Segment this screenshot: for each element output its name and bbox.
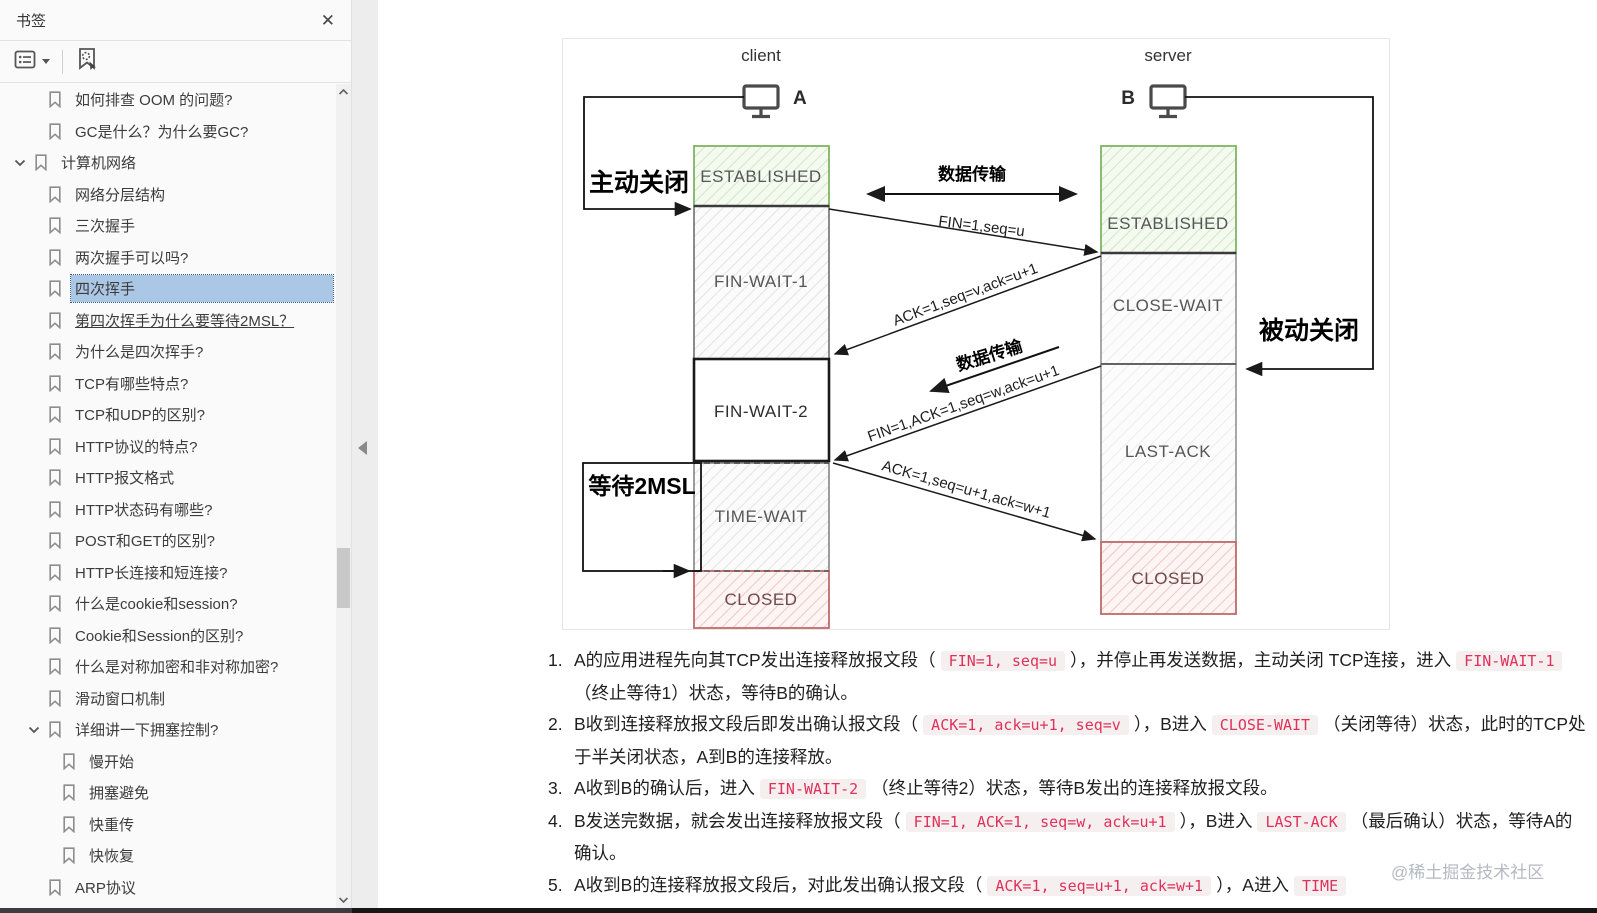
bookmark-icon bbox=[48, 532, 63, 549]
bookmark-item[interactable]: 详细讲一下拥塞控制? bbox=[0, 714, 335, 746]
server-computer-icon bbox=[1151, 86, 1185, 117]
bookmark-item-label: HTTP协议的特点? bbox=[71, 433, 333, 460]
note-body: A收到B的确认后，进入FIN-WAIT-2（终止等待2）状态，等待B发出的连接释… bbox=[574, 773, 1588, 806]
bookmark-item-label: 快恢复 bbox=[85, 842, 333, 869]
code-chip: FIN=1, ACK=1, seq=w, ack=u+1 bbox=[906, 812, 1175, 832]
note-item: 2.B收到连接释放报文段后即发出确认报文段（ACK=1, ack=u+1, se… bbox=[548, 709, 1588, 773]
bookmark-item-label: 拥塞避免 bbox=[85, 779, 333, 806]
server-title: server bbox=[1144, 46, 1192, 65]
msg-fin-label: FIN=1,seq=u bbox=[937, 213, 1025, 240]
bookmark-item[interactable]: ARP协议 bbox=[0, 872, 335, 904]
bookmark-icon bbox=[48, 469, 63, 486]
bookmark-item-label: HTTP状态码有哪些? bbox=[71, 496, 333, 523]
client-title: client bbox=[741, 46, 781, 65]
bookmark-icon bbox=[48, 91, 63, 108]
bookmarks-panel: 书签 ✕ 如何排查 OOM 的问题?GC是什么 bbox=[0, 0, 352, 908]
note-number: 3. bbox=[548, 773, 574, 806]
bookmark-icon bbox=[48, 375, 63, 392]
bookmark-item-label: 详细讲一下拥塞控制? bbox=[71, 716, 333, 743]
code-chip: TIME bbox=[1294, 876, 1346, 896]
code-chip: LAST-ACK bbox=[1257, 812, 1345, 832]
bookmark-item[interactable]: 两次握手可以吗? bbox=[0, 242, 335, 274]
bookmark-item[interactable]: 快恢复 bbox=[0, 840, 335, 872]
bookmark-icon bbox=[48, 879, 63, 896]
bookmark-item[interactable]: TCP有哪些特点? bbox=[0, 368, 335, 400]
bookmark-item[interactable]: 如何排查 OOM 的问题? bbox=[0, 84, 335, 116]
passive-close-label: 被动关闭 bbox=[1259, 317, 1359, 345]
bookmark-item-label: GC是什么？为什么要GC? bbox=[71, 118, 333, 145]
bookmark-icon bbox=[48, 627, 63, 644]
bookmark-icon bbox=[48, 343, 63, 360]
note-item: 3.A收到B的确认后，进入FIN-WAIT-2（终止等待2）状态，等待B发出的连… bbox=[548, 773, 1588, 806]
bookmark-icon bbox=[48, 312, 63, 329]
bookmark-item[interactable]: HTTP长连接和短连接? bbox=[0, 557, 335, 589]
note-number: 5. bbox=[548, 870, 574, 903]
bookmark-item[interactable]: TCP和UDP的区别? bbox=[0, 399, 335, 431]
msg-ack1-label: ACK=1,seq=v,ack=u+1 bbox=[891, 260, 1040, 330]
bookmark-item-label: HTTP长连接和短连接? bbox=[71, 559, 333, 586]
panel-gutter bbox=[352, 0, 378, 908]
bookmark-icon bbox=[62, 753, 77, 770]
bookmark-item[interactable]: HTTP协议的特点? bbox=[0, 431, 335, 463]
code-chip: ACK=1, ack=u+1, seq=v bbox=[923, 715, 1129, 735]
note-number: 1. bbox=[548, 645, 574, 709]
scrollbar-thumb[interactable] bbox=[337, 548, 350, 608]
note-item: 1.A的应用进程先向其TCP发出连接释放报文段（FIN=1, seq=u），并停… bbox=[548, 645, 1588, 709]
diagram-svg: client server A B ESTABLISHED FIN-WAIT-1… bbox=[563, 39, 1389, 629]
note-body: B收到连接释放报文段后即发出确认报文段（ACK=1, ack=u+1, seq=… bbox=[574, 709, 1588, 773]
bookmark-item-label: ARP协议 bbox=[71, 874, 333, 901]
bookmark-icon bbox=[48, 249, 63, 266]
toolbar-separator bbox=[62, 50, 63, 74]
note-text: A收到B的连接释放报文段后，对此发出确认报文段（ bbox=[574, 875, 982, 895]
bookmark-icon bbox=[48, 280, 63, 297]
bookmark-item-label: HTTP报文格式 bbox=[71, 464, 333, 491]
bookmark-item-label: POST和GET的区别? bbox=[71, 527, 333, 554]
bookmark-item-label: 四次挥手 bbox=[71, 275, 333, 302]
bookmark-icon bbox=[48, 406, 63, 423]
bookmark-item-label: 为什么是四次挥手? bbox=[71, 338, 333, 365]
caret-down-icon bbox=[42, 59, 50, 64]
bookmark-icon bbox=[48, 690, 63, 707]
server-state-established bbox=[1101, 146, 1236, 253]
note-text: （终止等待2）状态，等待B发出的连接释放报文段。 bbox=[871, 778, 1277, 798]
sidebar-scrollbar[interactable] bbox=[336, 84, 351, 908]
bookmark-item[interactable]: 第四次挥手为什么要等待2MSL？ bbox=[0, 305, 335, 337]
note-text: ），并停止再发送数据，主动关闭 TCP连接，进入 bbox=[1070, 650, 1451, 670]
note-text: ），B进入 bbox=[1180, 811, 1253, 831]
bookmark-item-label: Cookie和Session的区别? bbox=[71, 622, 333, 649]
bookmark-icon bbox=[48, 123, 63, 140]
bookmark-item[interactable]: 什么是对称加密和非对称加密? bbox=[0, 651, 335, 683]
bookmark-item-label: 网络分层结构 bbox=[71, 181, 333, 208]
client-host-letter: A bbox=[793, 88, 807, 109]
msg-finack-arrow bbox=[835, 366, 1101, 460]
bookmark-item[interactable]: 网络分层结构 bbox=[0, 179, 335, 211]
bookmark-icon bbox=[62, 847, 77, 864]
bookmark-item[interactable]: 滑动窗口机制 bbox=[0, 683, 335, 715]
msg-ack2-label: ACK=1,seq=u+1,ack=w+1 bbox=[880, 457, 1053, 522]
data-transfer-mid-label: 数据传输 bbox=[954, 335, 1026, 374]
document-page: client server A B ESTABLISHED FIN-WAIT-1… bbox=[378, 0, 1597, 908]
bookmark-item[interactable]: HTTP状态码有哪些? bbox=[0, 494, 335, 526]
bookmark-options-icon bbox=[14, 50, 36, 74]
code-chip: CLOSE-WAIT bbox=[1212, 715, 1318, 735]
bookmark-item-label: 计算机网络 bbox=[57, 149, 333, 176]
active-close-label: 主动关闭 bbox=[589, 169, 689, 197]
bookmark-item[interactable]: 计算机网络 bbox=[0, 147, 335, 179]
bookmark-item-label: 如何排查 OOM 的问题? bbox=[71, 86, 333, 113]
bookmark-item-label: TCP和UDP的区别? bbox=[71, 401, 333, 428]
bookmark-item-label: 三次握手 bbox=[71, 212, 333, 239]
state-label: FIN-WAIT-2 bbox=[714, 402, 808, 421]
msg-ack2-arrow bbox=[833, 463, 1095, 539]
note-body: A的应用进程先向其TCP发出连接释放报文段（FIN=1, seq=u），并停止再… bbox=[574, 645, 1588, 709]
code-chip: FIN-WAIT-2 bbox=[760, 779, 866, 799]
locate-bookmark-icon bbox=[75, 47, 99, 76]
state-label: CLOSED bbox=[1132, 569, 1205, 588]
state-label: TIME-WAIT bbox=[715, 507, 808, 526]
bookmark-item-label: TCP有哪些特点? bbox=[71, 370, 333, 397]
bookmark-item[interactable]: 快重传 bbox=[0, 809, 335, 841]
scroll-up-icon[interactable] bbox=[336, 84, 351, 100]
state-label: ESTABLISHED bbox=[1107, 214, 1228, 233]
bookmark-icon bbox=[48, 438, 63, 455]
panel-title: 书签 bbox=[16, 10, 46, 31]
bookmark-icon bbox=[48, 658, 63, 675]
bookmark-item-label: 滑动窗口机制 bbox=[71, 685, 333, 712]
state-label: CLOSE-WAIT bbox=[1113, 296, 1223, 315]
scroll-down-icon[interactable] bbox=[336, 892, 351, 908]
bookmark-icon bbox=[48, 595, 63, 612]
bookmarks-list: 如何排查 OOM 的问题?GC是什么？为什么要GC?计算机网络网络分层结构三次握… bbox=[0, 84, 335, 903]
client-computer-icon bbox=[744, 86, 778, 117]
chevron-down-icon[interactable] bbox=[26, 726, 48, 734]
state-label: FIN-WAIT-1 bbox=[714, 272, 808, 291]
bookmark-item[interactable]: 三次握手 bbox=[0, 210, 335, 242]
note-text: A的应用进程先向其TCP发出连接释放报文段（ bbox=[574, 650, 936, 670]
bookmarks-toolbar bbox=[0, 41, 351, 83]
bookmark-item-label: 什么是cookie和session? bbox=[71, 590, 333, 617]
code-chip: FIN-WAIT-1 bbox=[1456, 651, 1562, 671]
bookmark-item[interactable]: GC是什么？为什么要GC? bbox=[0, 116, 335, 148]
data-transfer-top-label: 数据传输 bbox=[938, 164, 1007, 184]
note-text: ），A进入 bbox=[1216, 875, 1289, 895]
bookmark-item[interactable]: 四次挥手 bbox=[0, 273, 335, 305]
bookmark-options-button[interactable] bbox=[14, 50, 50, 74]
watermark: @稀土掘金技术社区 bbox=[1391, 858, 1544, 883]
bookmark-icon bbox=[48, 217, 63, 234]
msg-ack1-arrow bbox=[835, 256, 1101, 354]
bookmark-icon bbox=[34, 154, 49, 171]
bookmark-item-label: 慢开始 bbox=[85, 748, 333, 775]
code-chip: ACK=1, seq=u+1, ack=w+1 bbox=[987, 876, 1211, 896]
bookmark-item-label: 什么是对称加密和非对称加密? bbox=[71, 653, 333, 680]
state-label: ESTABLISHED bbox=[700, 167, 821, 186]
bookmark-icon bbox=[62, 784, 77, 801]
bookmark-item-label: 快重传 bbox=[85, 811, 333, 838]
code-chip: FIN=1, seq=u bbox=[941, 651, 1065, 671]
wait-2msl-label: 等待2MSL bbox=[588, 473, 695, 499]
state-label: CLOSED bbox=[725, 590, 798, 609]
bookmark-icon bbox=[48, 186, 63, 203]
note-number: 4. bbox=[548, 806, 574, 870]
note-number: 2. bbox=[548, 709, 574, 773]
bookmark-icon bbox=[48, 721, 63, 738]
bookmark-item[interactable]: 为什么是四次挥手? bbox=[0, 336, 335, 368]
server-host-letter: B bbox=[1121, 88, 1135, 109]
note-text: B发送完数据，就会发出连接释放报文段（ bbox=[574, 811, 901, 831]
note-text: B收到连接释放报文段后即发出确认报文段（ bbox=[574, 714, 918, 734]
close-icon[interactable]: ✕ bbox=[321, 12, 335, 29]
msg-finack-label: FIN=1,ACK=1,seq=w,ack=u+1 bbox=[865, 362, 1061, 446]
tcp-wave-diagram: client server A B ESTABLISHED FIN-WAIT-1… bbox=[562, 38, 1390, 630]
note-text: A收到B的确认后，进入 bbox=[574, 778, 755, 798]
bottom-edge-right bbox=[352, 908, 1597, 913]
bookmark-item-label: 两次握手可以吗? bbox=[71, 244, 333, 271]
locate-bookmark-button[interactable] bbox=[75, 47, 99, 76]
chevron-down-icon[interactable] bbox=[12, 159, 34, 167]
state-label: LAST-ACK bbox=[1125, 442, 1211, 461]
bookmark-item[interactable]: HTTP报文格式 bbox=[0, 462, 335, 494]
note-text: （终止等待1）状态，等待B的确认。 bbox=[574, 683, 858, 703]
collapse-panel-icon[interactable] bbox=[358, 441, 367, 455]
bookmark-icon bbox=[62, 816, 77, 833]
bookmark-item[interactable]: 什么是cookie和session? bbox=[0, 588, 335, 620]
bookmark-item[interactable]: 拥塞避免 bbox=[0, 777, 335, 809]
bookmarks-header: 书签 ✕ bbox=[0, 0, 351, 41]
bottom-edge-left bbox=[0, 908, 352, 913]
bookmark-item[interactable]: 慢开始 bbox=[0, 746, 335, 778]
bookmark-icon bbox=[48, 564, 63, 581]
bookmark-icon bbox=[48, 501, 63, 518]
note-text: ），B进入 bbox=[1134, 714, 1207, 734]
bookmark-item-label: 第四次挥手为什么要等待2MSL？ bbox=[71, 307, 333, 334]
bookmark-item[interactable]: Cookie和Session的区别? bbox=[0, 620, 335, 652]
bookmark-item[interactable]: POST和GET的区别? bbox=[0, 525, 335, 557]
